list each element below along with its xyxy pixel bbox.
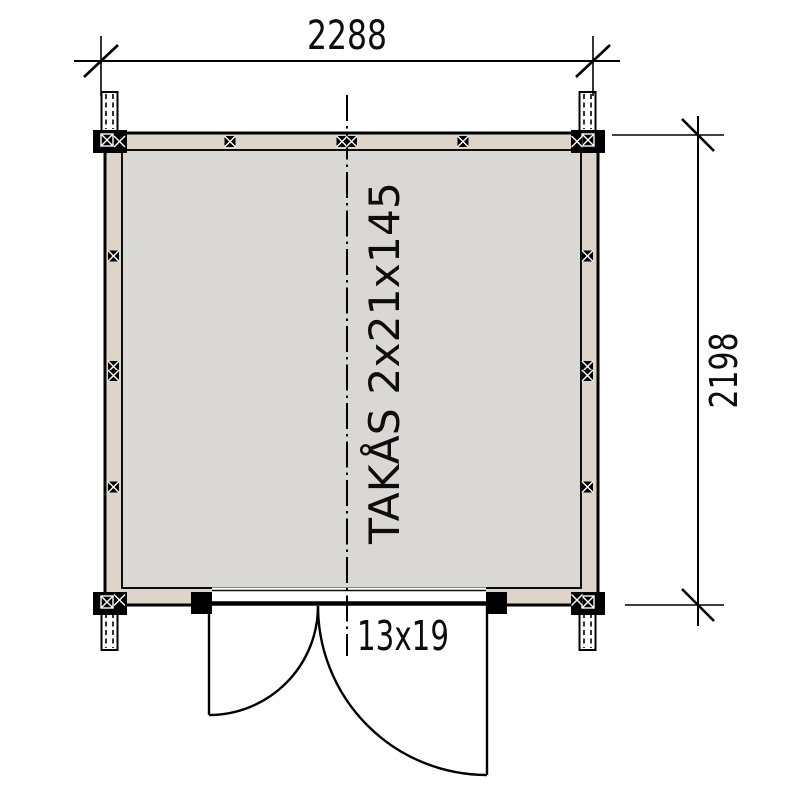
fastener-x-icon xyxy=(114,136,125,147)
fastener-x-icon xyxy=(337,136,348,147)
fastener-x-icon xyxy=(225,136,236,147)
post-top-left xyxy=(102,92,118,131)
door-jamb-right xyxy=(486,592,507,614)
fastener-x-icon xyxy=(108,482,119,493)
fastener-x-icon xyxy=(458,136,469,147)
post-bottom-right xyxy=(580,611,596,650)
door-opening xyxy=(212,588,486,608)
fastener-x-icon xyxy=(582,596,594,608)
floor-plan-drawing: 2288 2198 TAKÅS 2x21x145 13x19 xyxy=(0,0,800,800)
fastener-x-icon xyxy=(582,251,593,262)
dimension-height-label: 2198 xyxy=(702,333,746,409)
fastener-x-icon xyxy=(108,251,119,262)
ridge-beam-label: TAKÅS 2x21x145 xyxy=(359,182,409,545)
fastener-x-icon xyxy=(572,595,583,606)
post-bottom-left xyxy=(102,611,118,650)
floor-plan-canvas: 2288 2198 TAKÅS 2x21x145 13x19 xyxy=(0,0,800,800)
fastener-x-icon xyxy=(346,136,357,147)
dimension-width-label: 2288 xyxy=(307,13,387,59)
fastener-x-icon xyxy=(582,134,594,146)
floor-area xyxy=(122,150,581,588)
post-top-right xyxy=(580,92,596,131)
door-size-label: 13x19 xyxy=(357,612,449,660)
fastener-x-icon xyxy=(114,595,125,606)
fastener-x-icon xyxy=(572,136,583,147)
fastener-x-icon xyxy=(582,370,593,381)
fastener-x-icon xyxy=(101,134,113,146)
fastener-x-icon xyxy=(101,596,113,608)
fastener-x-icon xyxy=(108,370,119,381)
fastener-x-icon xyxy=(582,482,593,493)
